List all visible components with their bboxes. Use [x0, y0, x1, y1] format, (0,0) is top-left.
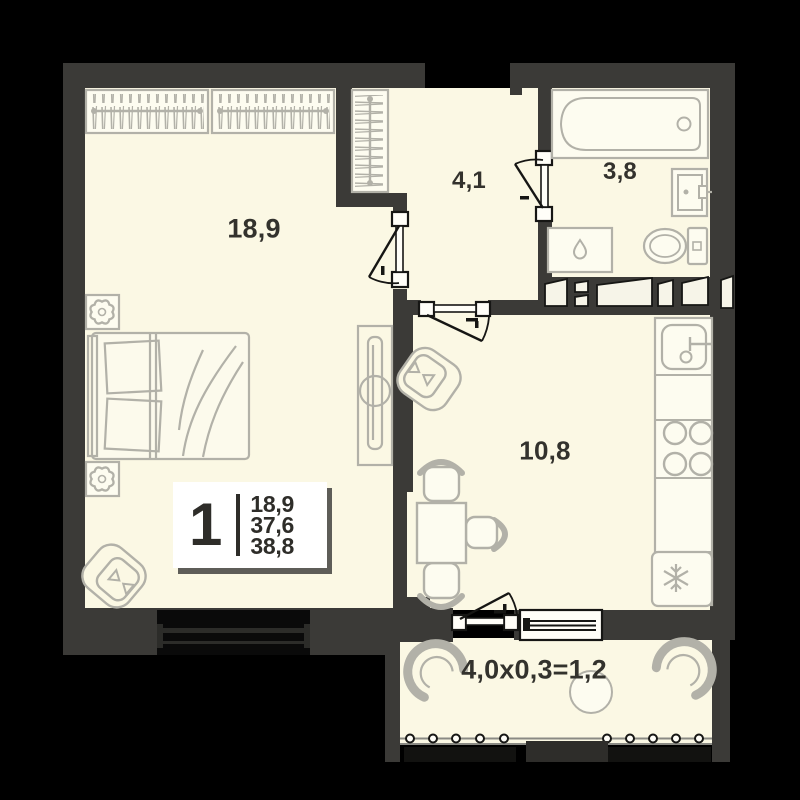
balcony-window-icon — [520, 610, 602, 640]
floor-plan: 18,9 4,1 3,8 10,8 4,0x0,3=1,2 1 18,9 37,… — [0, 0, 800, 800]
room-label-hallway: 4,1 — [452, 167, 486, 195]
hallway-wardrobe-icon — [352, 90, 388, 192]
fridge-icon — [652, 552, 712, 606]
sink-icon — [672, 169, 712, 216]
legend-total-area: 38,8 — [250, 536, 294, 557]
legend-rooms-count: 1 — [189, 495, 222, 555]
nightstand-icon — [86, 295, 119, 329]
bathtub-icon — [552, 90, 708, 158]
railing-icon — [400, 735, 712, 763]
room-label-balcony: 4,0x0,3=1,2 — [461, 655, 607, 686]
room-label-bathroom: 3,8 — [603, 158, 637, 186]
nightstand-icon — [86, 462, 119, 496]
room-label-bedroom: 18,9 — [227, 214, 280, 245]
wardrobe-icon — [86, 90, 208, 133]
wardrobe-icon — [212, 90, 334, 133]
toilet-icon — [644, 228, 707, 264]
bed-icon — [88, 333, 249, 459]
washing-machine-icon — [548, 228, 612, 272]
floor-plan-drawing — [0, 0, 800, 800]
legend-divider — [236, 494, 240, 556]
bedroom-window-icon — [157, 610, 310, 655]
legend-box: 1 18,9 37,6 38,8 — [173, 482, 327, 568]
room-label-kitchen: 10,8 — [519, 436, 570, 467]
